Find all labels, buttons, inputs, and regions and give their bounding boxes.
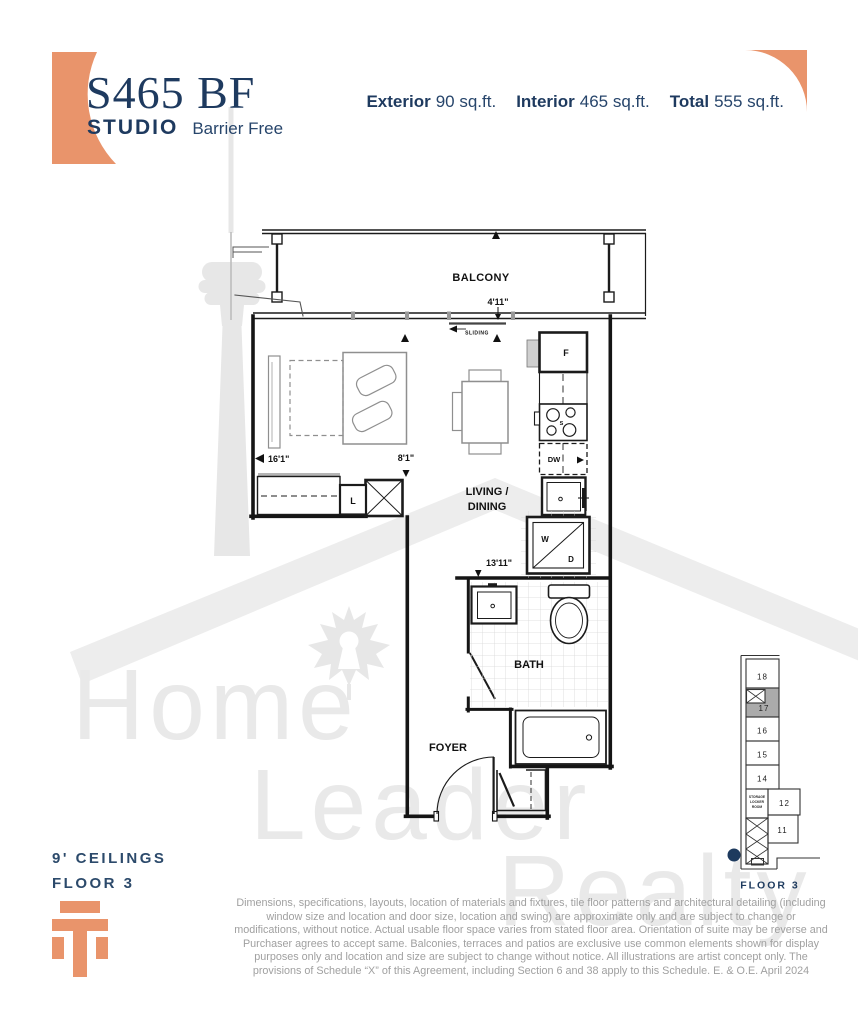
unit-variant-label: Barrier Free	[192, 119, 283, 139]
washer-dryer-box	[527, 517, 590, 574]
area-stats: Exterior90 sq.ft. Interior465 sq.ft. Tot…	[366, 92, 784, 112]
washer-label: W	[541, 535, 549, 544]
dining-chair	[469, 370, 501, 382]
bedroom-closets: L	[258, 475, 403, 517]
bed-mattress	[290, 361, 343, 436]
toilet-bowl	[551, 598, 588, 644]
pillow	[350, 399, 394, 434]
window-mullions	[351, 312, 515, 321]
living-label-line2: DINING	[468, 501, 507, 513]
sliding-arrow-icon	[449, 326, 457, 333]
bath-label: BATH	[514, 659, 544, 671]
keyplan-unit-12-label: 12	[779, 799, 790, 808]
stat-interior-label: Interior	[516, 92, 575, 112]
bath-sink	[472, 587, 517, 624]
keyplan-unit-14-label: 14	[757, 775, 768, 784]
keyplan-unit-18-label: 18	[757, 673, 768, 682]
keyplan-unit-16-label: 16	[757, 727, 768, 736]
keyplan-unit-15-label: 15	[757, 751, 768, 760]
keyplan-unit-14	[746, 765, 779, 789]
unit-code-title: S465 BF	[86, 66, 255, 119]
stat-total: Total555 sq.ft.	[670, 92, 784, 112]
storage-room-label-3: ROOM	[752, 805, 763, 809]
stat-exterior-label: Exterior	[366, 92, 430, 112]
keyplan-unit-17-label: 17	[759, 704, 770, 713]
keyplan-elevator-icon	[747, 690, 766, 704]
keyplan-unit-17-highlighted	[746, 688, 779, 717]
building-notes: 9' CEILINGS FLOOR 3	[52, 846, 166, 896]
dishwasher-label: DW	[548, 455, 561, 464]
fridge-label: F	[563, 348, 569, 358]
dim-balcony-door: 4'11"	[488, 297, 509, 307]
furniture	[269, 353, 509, 455]
dim-hall-width: 8'1"	[398, 453, 414, 463]
dining-table	[462, 382, 508, 444]
stat-interior-value: 465 sq.ft.	[580, 92, 650, 112]
bath-door-leaf	[470, 653, 495, 699]
kitchen: F S DW W D	[521, 333, 596, 579]
stat-total-value: 555 sq.ft.	[714, 92, 784, 112]
stove-box	[540, 404, 588, 441]
stat-exterior: Exterior90 sq.ft.	[366, 92, 496, 112]
storage-room-label-1: STORAGE	[749, 795, 766, 799]
keyplan-unit-16	[746, 717, 779, 741]
legal-disclaimer: Dimensions, specifications, layouts, loc…	[232, 897, 830, 979]
dishwasher-box	[540, 444, 588, 475]
watermark-word-home: Home	[72, 648, 359, 763]
toilet-tank	[549, 585, 590, 598]
t-logo-icon	[52, 901, 108, 977]
living-label-line1: LIVING /	[466, 486, 509, 498]
shaft-box	[366, 480, 403, 516]
stat-exterior-value: 90 sq.ft.	[436, 92, 496, 112]
linen-closet-label: L	[350, 496, 356, 506]
bath-tile-floor	[470, 582, 608, 707]
bed-frame	[343, 353, 407, 445]
dim-bedroom-width: 16'1"	[268, 454, 289, 464]
section-marker-icon	[401, 231, 501, 342]
balcony-posts	[272, 234, 614, 302]
bathroom	[470, 582, 608, 764]
keyplan-unit-18	[746, 659, 779, 688]
kitchen-sink	[542, 478, 586, 516]
cn-tower-watermark	[199, 107, 266, 556]
unit-type-row: STUDIO Barrier Free	[87, 116, 283, 140]
balcony-area	[231, 230, 646, 342]
dining-chair	[469, 443, 501, 455]
keyplan-unit-12	[768, 789, 800, 815]
keyplan-unit-15	[746, 741, 779, 765]
stove-label: S	[560, 421, 564, 427]
floorplan-sheet: Home Leader Realty S465 BF STUDIO Barrie…	[0, 0, 858, 1030]
dryer-label: D	[568, 555, 574, 564]
balcony-label: BALCONY	[452, 272, 509, 284]
keyplan-storage-room	[746, 789, 768, 818]
dining-chair	[453, 393, 465, 431]
fridge-box	[540, 333, 588, 373]
floor-note: FLOOR 3	[52, 871, 166, 896]
stat-total-label: Total	[670, 92, 709, 112]
unit-type-label: STUDIO	[87, 116, 178, 140]
ceiling-note: 9' CEILINGS	[52, 846, 166, 871]
stat-interior: Interior465 sq.ft.	[516, 92, 650, 112]
sliding-label: SLIDING	[465, 331, 489, 337]
pillow	[354, 363, 398, 398]
storage-room-label-2: LOCKER	[750, 800, 765, 804]
dim-bath-wall: 13'11"	[486, 558, 512, 568]
linen-closet-box	[340, 485, 366, 515]
